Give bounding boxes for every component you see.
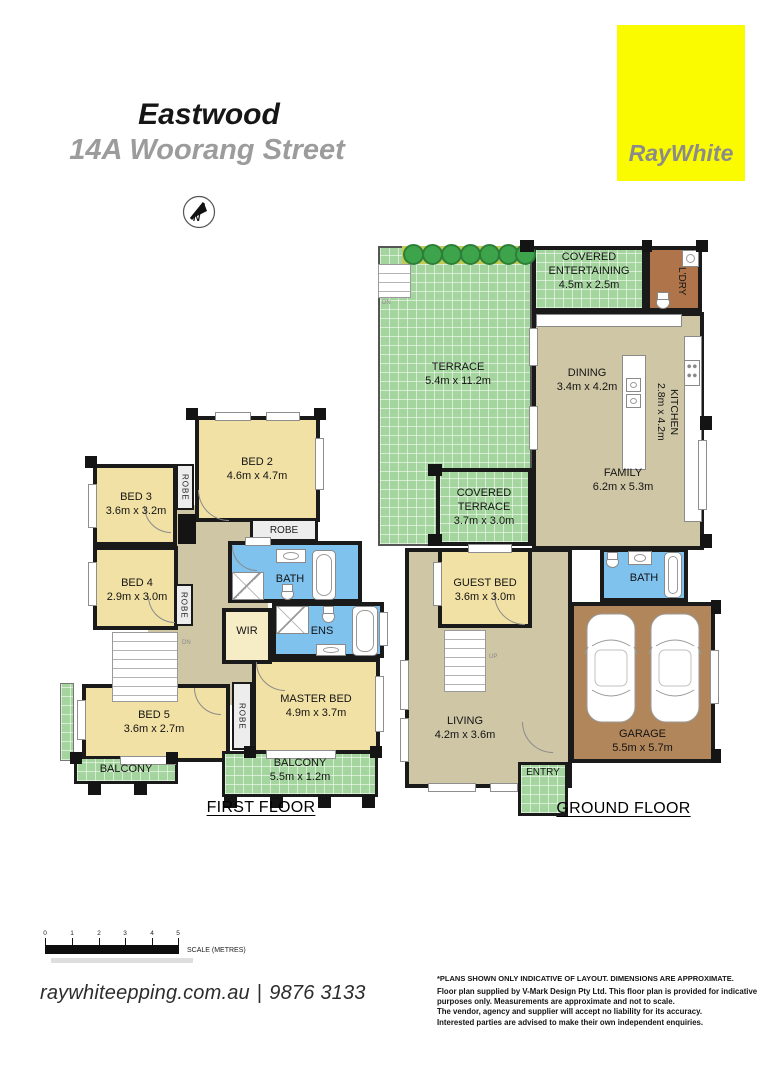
room-label-guest-bed: GUEST BED3.6m x 3.0m — [438, 576, 532, 604]
room-label-laundry: L'DRY — [664, 254, 688, 308]
car-icon — [648, 612, 702, 724]
window — [245, 537, 271, 546]
ground-floor-label: GROUND FLOOR — [556, 800, 691, 818]
disclaimer-line: Interested parties are advised to make t… — [437, 1018, 747, 1028]
wall-pier — [696, 240, 708, 252]
raywhite-logo-text: RayWhite — [617, 140, 745, 167]
scale-bar-caption: SCALE (METRES) — [187, 947, 246, 954]
kitchen-counter — [536, 314, 682, 327]
scale-tick-label: 3 — [123, 930, 127, 937]
room-label-bed2: BED 24.6m x 4.7m — [196, 455, 318, 483]
wall-pier — [314, 408, 326, 420]
wall-pier — [700, 534, 712, 548]
scale-tick-label: 4 — [150, 930, 154, 937]
window — [468, 544, 512, 553]
vanity-fixture — [628, 551, 652, 565]
room-label-bath-first: BATH — [240, 572, 340, 586]
window — [215, 412, 251, 421]
wall-pier — [700, 416, 712, 430]
sink-fixture — [626, 394, 641, 408]
tree-icon — [422, 244, 443, 265]
room-label-balcony-right: BALCONY5.5m x 1.2m — [222, 756, 378, 784]
window — [266, 412, 300, 421]
tree-icon — [403, 244, 424, 265]
disclaimer-line: purposes only. Measurements are approxim… — [437, 997, 747, 1007]
agency-phone: 9876 3133 — [269, 982, 365, 1004]
wall-pier — [428, 464, 442, 476]
toilet-fixture — [322, 606, 335, 623]
window — [710, 650, 719, 704]
wall-pier — [428, 534, 442, 546]
room-label-bed5: BED 53.6m x 2.7m — [82, 708, 226, 736]
contact-separator: | — [257, 982, 262, 1004]
window — [379, 612, 388, 646]
north-compass-icon: N — [181, 194, 217, 230]
raywhite-logo: RayWhite — [617, 25, 745, 181]
disclaimer-title: *PLANS SHOWN ONLY INDICATIVE OF LAYOUT. … — [437, 974, 747, 983]
scale-tick — [45, 938, 46, 945]
scale-tick-label: 2 — [97, 930, 101, 937]
page-subtitle-address: 14A Woorang Street — [33, 134, 381, 167]
disclaimer-line: Floor plan supplied by V-Mark Design Pty… — [437, 987, 747, 997]
stove-fixture — [684, 360, 700, 386]
balcony-post — [134, 782, 147, 795]
scale-tick — [72, 938, 73, 945]
disclaimer-block: *PLANS SHOWN ONLY INDICATIVE OF LAYOUT. … — [437, 974, 747, 1028]
wall-pier — [186, 408, 198, 420]
staircase-ground-floor — [444, 630, 486, 692]
toilet-fixture — [281, 584, 294, 600]
room-label-ensuite: ENS — [282, 624, 362, 638]
floor-plan-page: Eastwood 14A Woorang Street N RayWhite R… — [0, 0, 764, 1080]
scale-tick-label: 0 — [43, 930, 47, 937]
room-label-bath-ground: BATH — [600, 571, 688, 585]
room-label-covered-entertaining: COVERED ENTERTAINING4.5m x 2.5m — [532, 250, 646, 292]
scale-bar: 0 1 2 3 4 5 SCALE (METRES) — [45, 932, 305, 968]
room-label-master-bed: MASTER BED4.9m x 3.7m — [252, 692, 380, 720]
scale-tick-label: 1 — [70, 930, 74, 937]
window — [490, 783, 518, 792]
window — [698, 440, 707, 510]
agency-website: raywhiteepping.com.au — [40, 982, 250, 1004]
vanity-fixture — [316, 644, 346, 656]
scale-tick — [152, 938, 153, 945]
page-title: Eastwood — [59, 98, 359, 132]
vanity-fixture — [276, 549, 306, 563]
window — [400, 660, 409, 710]
room-label-wir: WIR — [222, 624, 272, 638]
agency-contact-line: raywhiteepping.com.au|9876 3133 — [40, 982, 366, 1005]
room-label-bed3: BED 33.6m x 3.2m — [93, 490, 179, 518]
tree-icon — [479, 244, 500, 265]
room-label-garage: GARAGE5.5m x 5.7m — [574, 727, 711, 755]
window — [529, 328, 538, 366]
stair-direction-label: DN — [182, 640, 191, 646]
stair-direction-label: UP — [489, 654, 497, 660]
window — [529, 406, 538, 450]
room-label-balcony-left: BALCONY — [74, 762, 178, 776]
scale-tick-label: 5 — [176, 930, 180, 937]
room-label-kitchen: KITCHEN2.8m x 4.2m — [650, 352, 680, 472]
tree-icon — [460, 244, 481, 265]
first-floor-label: FIRST FLOOR — [196, 799, 326, 817]
svg-text:N: N — [193, 213, 201, 224]
staircase-first-floor — [112, 632, 178, 702]
scale-bar-shadow — [51, 958, 193, 963]
room-label-family: FAMILY6.2m x 5.3m — [548, 466, 698, 494]
balcony-post — [362, 795, 375, 808]
tree-icon — [441, 244, 462, 265]
car-icon — [584, 612, 638, 724]
balcony-post — [88, 782, 101, 795]
scale-bar-rule — [45, 945, 179, 954]
wall-pier — [711, 749, 721, 763]
room-label-bed4: BED 42.9m x 3.0m — [93, 576, 181, 604]
window — [428, 783, 476, 792]
wall-segment — [178, 514, 196, 544]
room-label-dining: DINING3.4m x 4.2m — [532, 366, 642, 394]
side-garden-strip — [60, 683, 74, 761]
scale-tick — [125, 938, 126, 945]
scale-tick — [99, 938, 100, 945]
stair-direction-label: DN — [382, 300, 391, 306]
scale-tick — [178, 938, 179, 945]
room-label-covered-terrace: COVERED TERRACE3.7m x 3.0m — [436, 486, 532, 528]
robe-master: ROBE — [232, 682, 252, 750]
room-label-living: LIVING4.2m x 3.6m — [403, 714, 527, 742]
terrace-steps — [378, 264, 411, 298]
disclaimer-line: The vendor, agency and supplier will acc… — [437, 1007, 747, 1017]
room-label-terrace: TERRACE5.4m x 11.2m — [398, 360, 518, 388]
toilet-fixture — [606, 552, 619, 568]
wall-pier — [711, 600, 721, 614]
wall-pier — [85, 456, 97, 468]
room-label-entry: ENTRY — [518, 766, 568, 780]
